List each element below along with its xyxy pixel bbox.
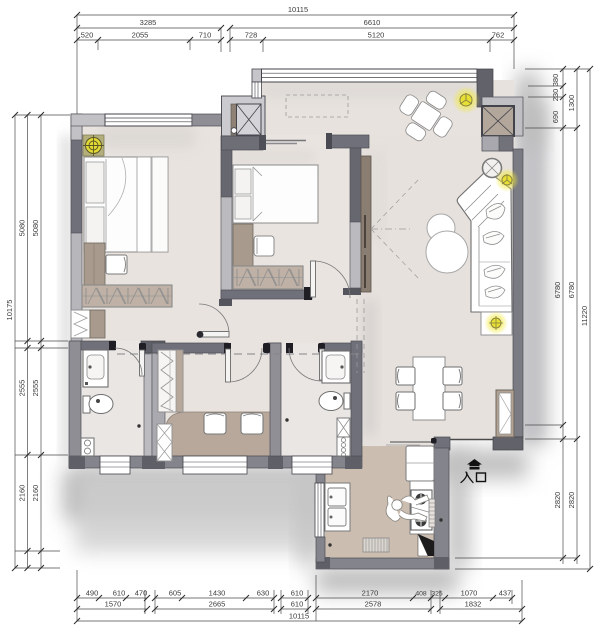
svg-text:380: 380 (551, 74, 560, 87)
svg-text:520: 520 (81, 31, 94, 40)
svg-text:408: 408 (415, 591, 427, 598)
svg-text:2160: 2160 (31, 485, 40, 502)
svg-text:710: 710 (199, 31, 212, 40)
svg-text:630: 630 (257, 589, 270, 598)
svg-text:610: 610 (113, 589, 126, 598)
svg-text:6610: 6610 (364, 18, 381, 27)
svg-text:1832: 1832 (465, 600, 482, 609)
svg-text:1570: 1570 (105, 600, 122, 609)
svg-text:2665: 2665 (209, 600, 226, 609)
svg-text:2820: 2820 (567, 492, 576, 509)
svg-text:230: 230 (551, 89, 560, 102)
svg-text:2820: 2820 (553, 492, 562, 509)
svg-text:490: 490 (86, 589, 99, 598)
svg-text:5080: 5080 (31, 220, 40, 237)
svg-text:325: 325 (431, 591, 443, 598)
svg-text:5080: 5080 (18, 220, 27, 237)
svg-text:10115: 10115 (289, 612, 309, 621)
svg-text:11220: 11220 (580, 306, 589, 326)
svg-text:10175: 10175 (5, 300, 14, 321)
svg-text:5120: 5120 (368, 31, 385, 40)
svg-text:728: 728 (245, 31, 258, 40)
svg-text:2160: 2160 (18, 485, 27, 502)
svg-text:1300: 1300 (567, 95, 576, 112)
svg-text:762: 762 (492, 31, 505, 40)
svg-text:2055: 2055 (132, 31, 149, 40)
svg-text:2578: 2578 (365, 600, 382, 609)
svg-text:3285: 3285 (140, 18, 157, 27)
svg-text:610: 610 (291, 600, 304, 609)
svg-text:437: 437 (499, 589, 512, 598)
svg-text:1430: 1430 (209, 589, 226, 598)
svg-text:605: 605 (169, 589, 182, 598)
svg-text:10115: 10115 (288, 5, 308, 14)
svg-text:610: 610 (291, 589, 304, 598)
svg-text:2555: 2555 (31, 380, 40, 397)
svg-text:2555: 2555 (18, 380, 27, 397)
svg-text:2170: 2170 (362, 589, 379, 598)
svg-text:1070: 1070 (461, 589, 478, 598)
svg-text:690: 690 (551, 111, 560, 124)
svg-text:470: 470 (135, 589, 148, 598)
svg-text:6780: 6780 (553, 282, 562, 299)
svg-text:6780: 6780 (567, 282, 576, 299)
